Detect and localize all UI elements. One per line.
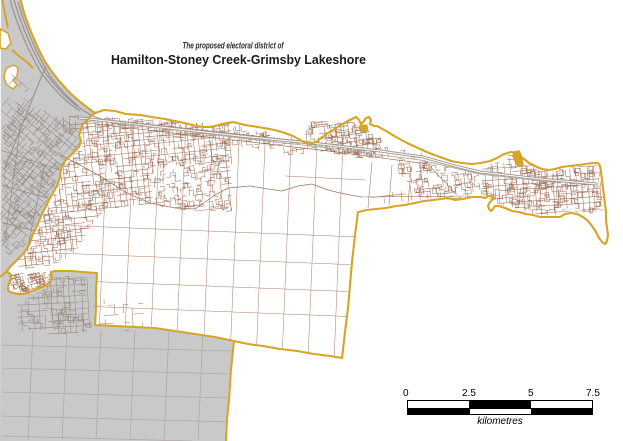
svg-text:The proposed electoral distric: The proposed electoral district of bbox=[183, 41, 285, 51]
svg-text:Hamilton-Stoney Creek-Grimsby: Hamilton-Stoney Creek-Grimsby Lakeshore bbox=[111, 52, 366, 67]
